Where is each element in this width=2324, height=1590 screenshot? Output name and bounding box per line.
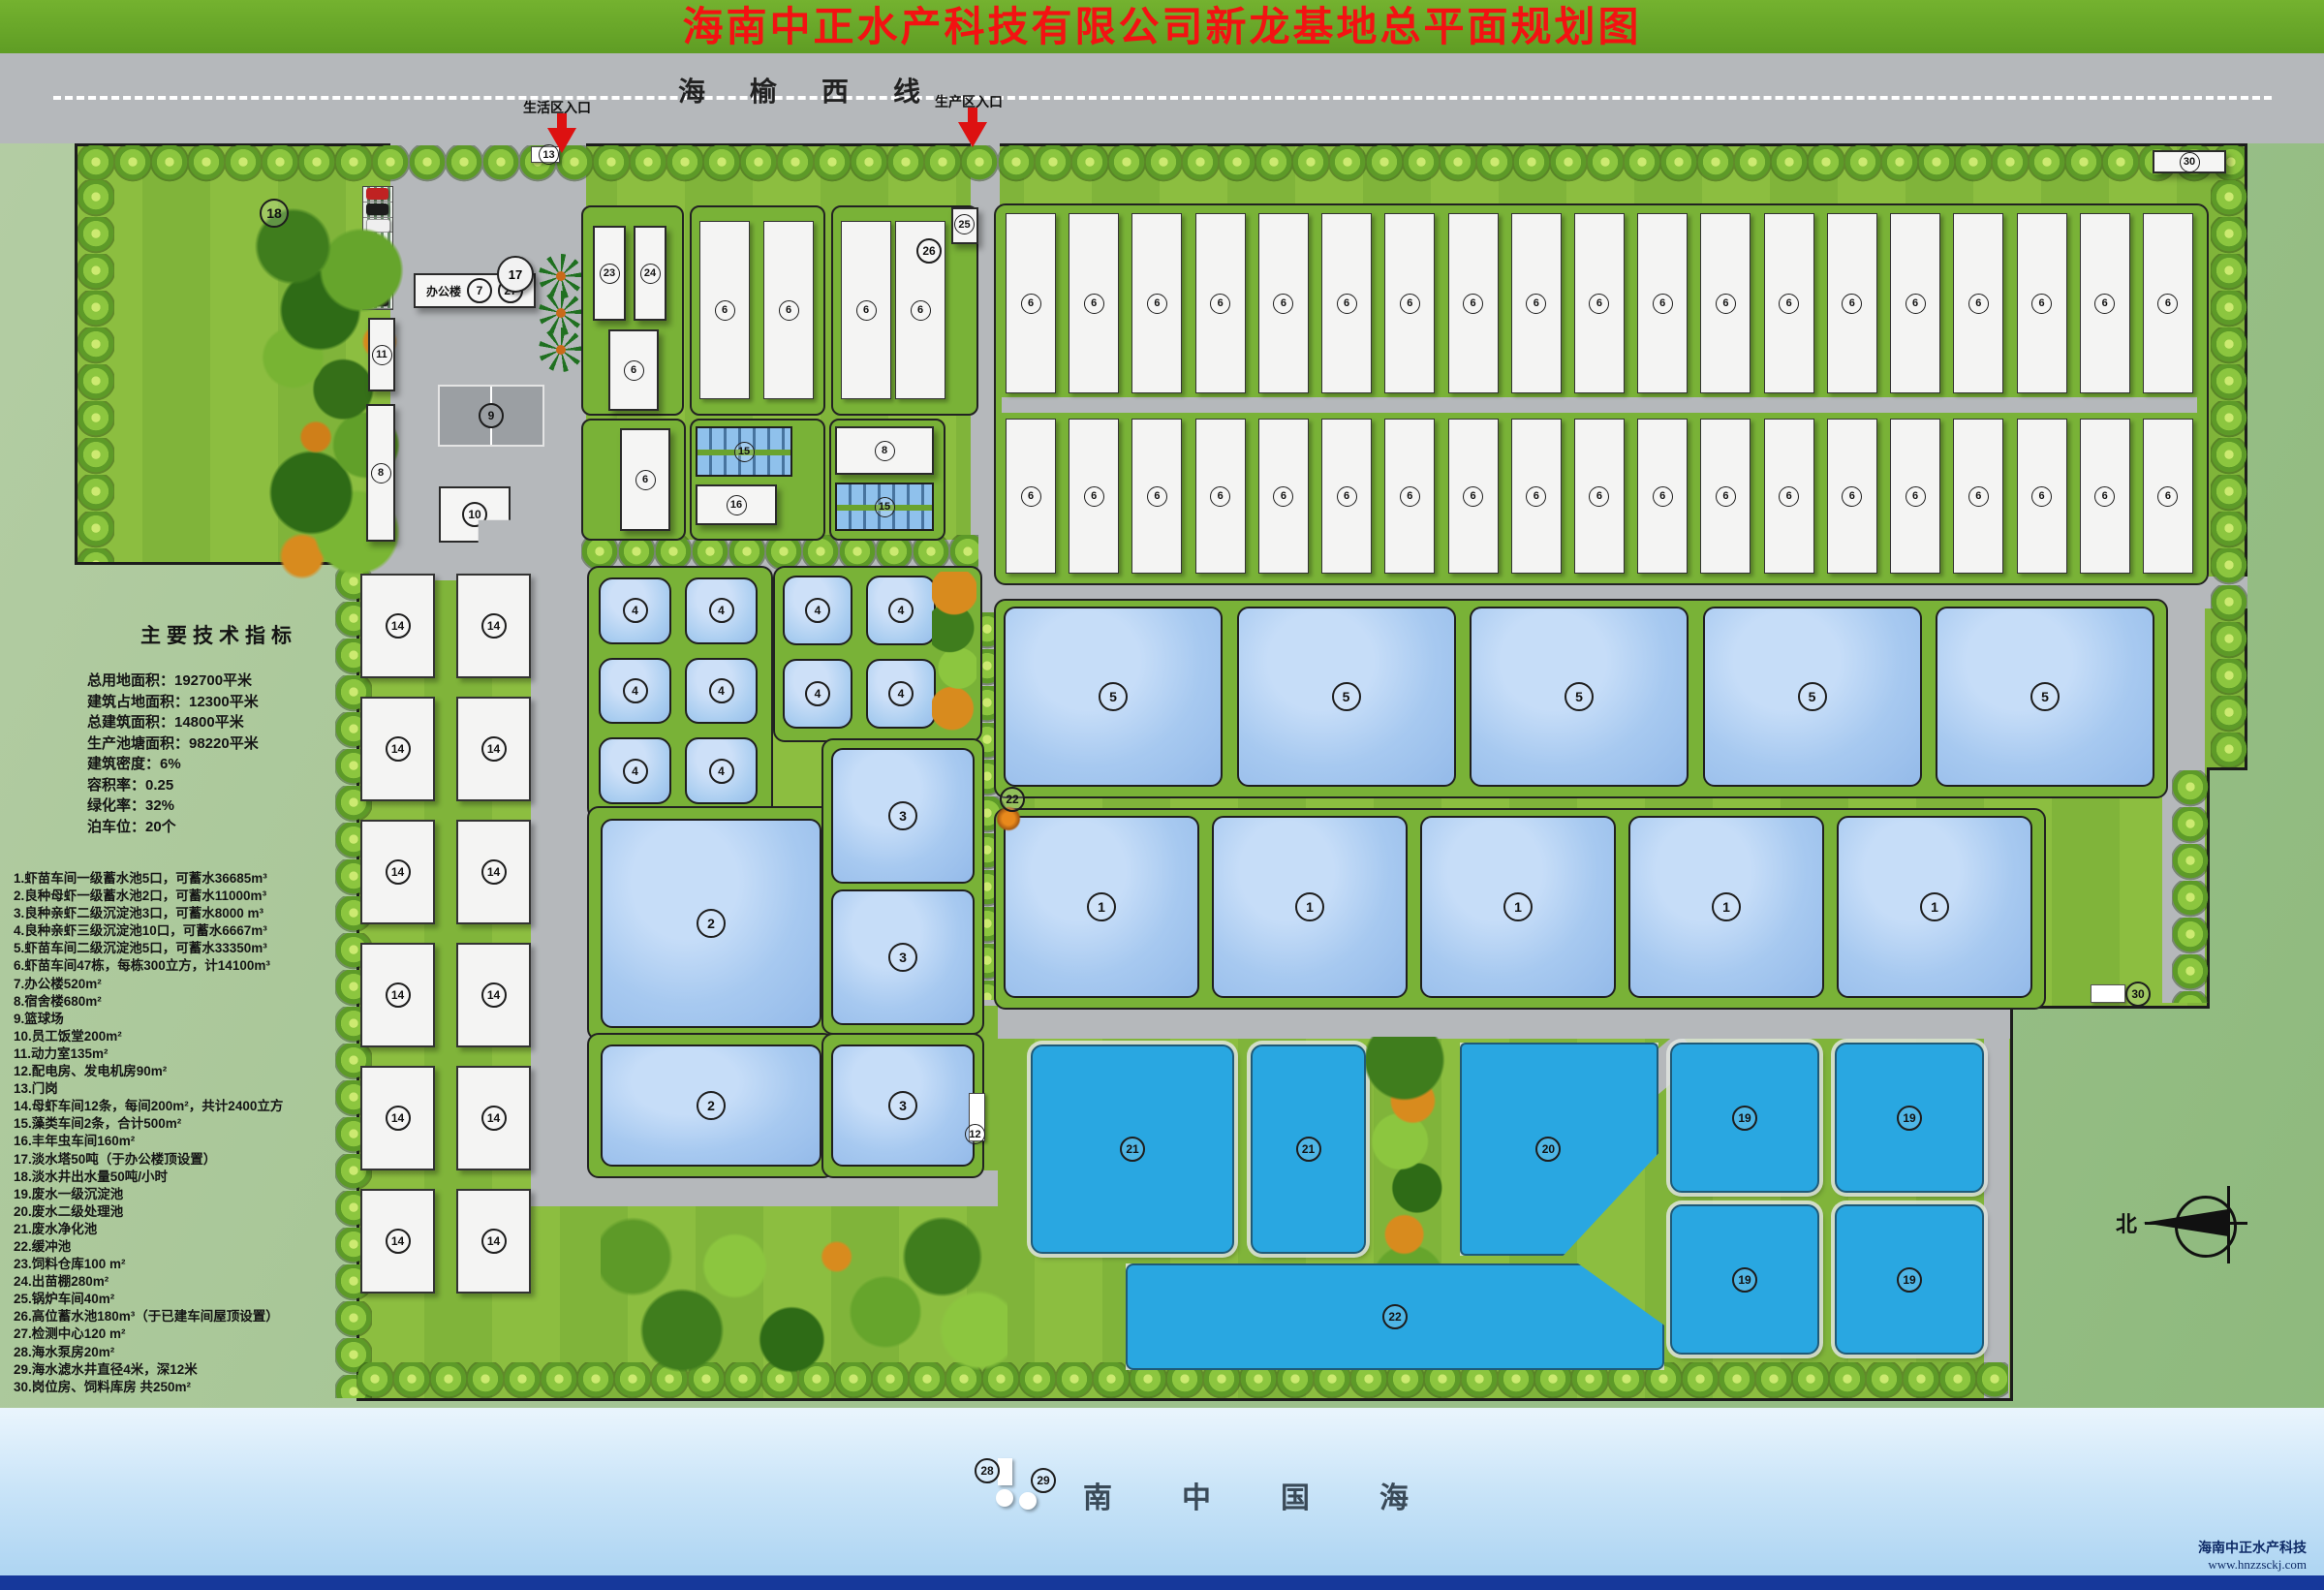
shrimp-workshop: 6 xyxy=(1827,213,1877,393)
shrimp-workshop: 6 xyxy=(699,221,750,399)
page-title: 海南中正水产科技有限公司新龙基地总平面规划图 xyxy=(0,0,2324,53)
shrimp-workshop: 6 xyxy=(1700,213,1751,393)
shrimp-workshop: 6 xyxy=(2017,213,2067,393)
highway: 海榆西线 生活区入口 生产区入口 xyxy=(0,53,2324,143)
indicator-line: 生产池塘面积：98220平米 xyxy=(87,733,407,755)
reservoir-pond: 1 xyxy=(1004,816,1199,998)
storage-pond: 5 xyxy=(1703,607,1922,787)
legend-item: 2.良种母虾一级蓄水池2口，可蓄水11000m³ xyxy=(14,888,356,905)
waste-settling-pond: 19 xyxy=(1670,1204,1819,1355)
shrimp-workshop: 6 xyxy=(1131,213,1182,393)
legend-item: 15.藻类车间2条，合计500m² xyxy=(14,1115,356,1133)
mother-shrimp-workshop: 14 xyxy=(456,820,531,924)
mother-shrimp-workshop: 14 xyxy=(456,574,531,678)
mother-shrimp-pond: 2 xyxy=(601,1044,821,1167)
indicator-line: 绿化率：32% xyxy=(87,795,407,817)
hedge-right-upper xyxy=(2211,180,2247,767)
legend-item: 30.岗位房、饲料库房 共250m² xyxy=(14,1379,356,1396)
mother-shrimp-pond: 2 xyxy=(601,819,821,1028)
legend-item: 4.良种亲虾三级沉淀池10口，可蓄水6667m³ xyxy=(14,922,356,940)
marker-pond2: 2 xyxy=(697,1091,726,1120)
mother-shrimp-workshop: 14 xyxy=(360,1189,435,1294)
watermark-url: www.hnzzsckj.com xyxy=(2198,1557,2307,1573)
shrimp-workshop: 6 xyxy=(1511,419,1562,574)
shrimp-workshop: 6 xyxy=(2080,213,2130,393)
hedge-top xyxy=(77,145,2245,182)
legend-item: 29.海水滤水井直径4米，深12米 xyxy=(14,1361,356,1379)
marker-freshwater-well-area: 18 xyxy=(260,199,289,228)
marker-algae: 15 xyxy=(734,442,755,462)
shrimp-workshop: 6 xyxy=(1258,419,1309,574)
legend-item: 19.废水一级沉淀池 xyxy=(14,1186,356,1203)
sea-bottom-strip xyxy=(0,1575,2324,1590)
tree-cluster xyxy=(225,199,452,596)
hedge-right-mid xyxy=(2172,770,2209,1003)
filter-well-icon xyxy=(1019,1492,1037,1510)
marker-dormitory-2: 8 xyxy=(875,441,895,461)
mother-shrimp-workshop: 14 xyxy=(456,697,531,801)
settling-pool: 4 xyxy=(685,577,758,644)
settling-pool: 4 xyxy=(599,577,671,644)
parent-shrimp-pond: 3 xyxy=(831,748,975,884)
indicator-line: 建筑占地面积：12300平米 xyxy=(87,692,407,713)
legend-item: 18.淡水井出水量50吨/小时 xyxy=(14,1169,356,1186)
indicator-line: 建筑密度：6% xyxy=(87,754,407,775)
indicators-lines: 总用地面积：192700平米建筑占地面积：12300平米总建筑面积：14800平… xyxy=(87,670,407,837)
legend-item: 3.良种亲虾二级沉淀池3口，可蓄水8000 m³ xyxy=(14,905,356,922)
shrimp-workshop: 6 xyxy=(2143,419,2193,574)
highway-label: 海榆西线 xyxy=(678,71,965,109)
indicator-line: 总用地面积：192700平米 xyxy=(87,670,407,692)
sea-area: 南中国海 28 29 海南中正水产科技 www.hnzzsckj.com xyxy=(0,1408,2324,1590)
marker-pond2: 2 xyxy=(697,909,726,938)
entrance-arrow-icon xyxy=(557,113,567,129)
brine-shrimp-workshop: 16 xyxy=(696,484,777,525)
shrimp-workshop: 6 xyxy=(1069,419,1119,574)
shrimp-workshop: 6 xyxy=(1764,419,1814,574)
legend-item: 28.海水泵房20m² xyxy=(14,1344,356,1361)
legend-item: 24.出苗棚280m² xyxy=(14,1273,356,1291)
marker-basketball-court: 9 xyxy=(479,403,504,428)
marker-gate: 13 xyxy=(539,144,559,165)
marker-guard-store: 30 xyxy=(2180,152,2200,172)
reservoir-pond: 1 xyxy=(1212,816,1408,998)
legend-item: 25.锅炉车间40m² xyxy=(14,1291,356,1308)
technical-indicators-panel: 主要技术指标 总用地面积：192700平米建筑占地面积：12300平米总建筑面积… xyxy=(87,620,407,837)
shrimp-workshop: 6 xyxy=(1006,213,1056,393)
shrimp-workshop: 6 xyxy=(1131,419,1182,574)
settling-pool: 4 xyxy=(685,737,758,804)
sprout-shed: 24 xyxy=(634,226,666,321)
reservoir-pond: 1 xyxy=(1837,816,2032,998)
marker-workshop: 6 xyxy=(635,470,656,490)
algae-workshop-pool: 15 xyxy=(696,426,792,477)
shrimp-workshop: 6 xyxy=(1384,419,1435,574)
dormitory-building-2: 8 xyxy=(835,426,934,475)
marker-algae: 15 xyxy=(875,497,895,517)
legend-item: 13.门岗 xyxy=(14,1080,356,1098)
storage-pond: 5 xyxy=(1936,607,2154,787)
outlet-structure xyxy=(2091,984,2125,1003)
shrimp-workshop: 6 xyxy=(608,329,659,411)
waste-settling-pond: 19 xyxy=(1670,1043,1819,1193)
marker-water-tower: 17 xyxy=(509,267,522,282)
guard-feed-store: 30 xyxy=(2153,150,2226,173)
shrimp-workshop: 6 xyxy=(1637,419,1688,574)
settling-pool: 4 xyxy=(866,576,936,645)
workshop-pair-a: 66 xyxy=(699,221,814,399)
shrimp-workshop: 6 xyxy=(1195,419,1246,574)
settling-pool: 4 xyxy=(783,576,852,645)
road-centerline xyxy=(53,96,2272,100)
settling-pool: 4 xyxy=(685,658,758,725)
shrimp-workshop: 6 xyxy=(1258,213,1309,393)
shrimp-workshop: 6 xyxy=(1953,419,2003,574)
marker-rooftop-tank: 26 xyxy=(916,238,942,264)
title-band: 海南中正水产科技有限公司新龙基地总平面规划图 xyxy=(0,0,2324,53)
marker-seawater-pump: 28 xyxy=(975,1458,1000,1483)
legend-item: 10.员工饭堂200m² xyxy=(14,1028,356,1045)
shrimp-workshop: 6 xyxy=(1574,213,1625,393)
marker-outlet: 30 xyxy=(2125,982,2151,1007)
marker-sprout-shed: 24 xyxy=(640,264,661,284)
algae-workshop-pool: 15 xyxy=(835,483,934,531)
marker-boiler: 25 xyxy=(954,214,975,234)
legend-item: 27.检测中心120 m² xyxy=(14,1325,356,1343)
compass-north-arrow xyxy=(2143,1209,2228,1236)
settling-pools-group-b: 4444 xyxy=(783,576,936,729)
storage-pond: 5 xyxy=(1237,607,1456,787)
shrimp-workshop: 6 xyxy=(2017,419,2067,574)
marker-pond21: 21 xyxy=(1120,1137,1145,1162)
filter-well-icon xyxy=(996,1489,1013,1507)
mother-shrimp-workshop: 14 xyxy=(456,1066,531,1170)
boundary-step-ne xyxy=(2207,767,2247,770)
mother-shrimp-workshop: 14 xyxy=(360,1066,435,1170)
marker-office: 7 xyxy=(467,278,492,303)
legend-item: 16.丰年虫车间160m² xyxy=(14,1133,356,1150)
parent-shrimp-pond: 3 xyxy=(831,889,975,1025)
legend-item: 12.配电房、发电机房90m² xyxy=(14,1063,356,1080)
office-label: 办公楼 xyxy=(426,283,461,299)
storage-pond: 5 xyxy=(1470,607,1689,787)
parent-shrimp-pond: 3 xyxy=(831,1044,975,1167)
trees-pool-pad xyxy=(932,572,976,733)
workshop-row-2: 6666666666666666666 xyxy=(1006,419,2193,574)
legend-item: 14.母虾车间12条，每间200m²，共计2400立方 xyxy=(14,1098,356,1115)
shrimp-workshop: 6 xyxy=(1195,213,1246,393)
legend-item: 23.饲料仓库100 m² xyxy=(14,1256,356,1273)
waste-settling-pond: 19 xyxy=(1835,1204,1984,1355)
legend-item: 26.高位蓄水池180m³（于已建车间屋顶设置） xyxy=(14,1308,356,1325)
road-right-lower xyxy=(1984,1039,2009,1398)
storage-pond: 5 xyxy=(1004,607,1223,787)
marker-feed-warehouse: 23 xyxy=(600,264,620,284)
trees-southwest xyxy=(601,1201,1007,1386)
watermark: 海南中正水产科技 www.hnzzsckj.com xyxy=(2198,1538,2307,1573)
entrance-arrow-icon xyxy=(968,108,977,123)
legend-item: 7.办公楼520m² xyxy=(14,976,356,993)
palm-tree-icon xyxy=(539,327,583,372)
shrimp-workshop: 6 xyxy=(1511,213,1562,393)
entrance-arrow-icon xyxy=(958,122,987,147)
power-room: 11 xyxy=(368,318,395,391)
shrimp-workshop: 6 xyxy=(2080,419,2130,574)
marker-pond3: 3 xyxy=(888,943,917,972)
shrimp-workshop: 6 xyxy=(1321,419,1372,574)
legend-item: 11.动力室135m² xyxy=(14,1045,356,1063)
workshop-row-1: 6666666666666666666 xyxy=(1006,213,2193,393)
marker-pond22: 22 xyxy=(1382,1304,1408,1329)
marker-pond21: 21 xyxy=(1296,1137,1321,1162)
boundary-right-lower xyxy=(2010,1006,2013,1401)
shrimp-workshop: 6 xyxy=(1574,419,1625,574)
primary-settling-ponds: 19191919 xyxy=(1670,1043,1984,1355)
shrimp-workshop: 6 xyxy=(1637,213,1688,393)
hedge-left xyxy=(77,180,114,562)
marker-filter-well: 29 xyxy=(1031,1468,1056,1493)
shrimp-workshop: 6 xyxy=(1448,419,1499,574)
indicator-line: 总建筑面积：14800平米 xyxy=(87,712,407,733)
mother-shrimp-workshop: 14 xyxy=(456,943,531,1047)
settling-pools-group-a: 444444 xyxy=(599,577,758,804)
legend-item: 8.宿舍楼680m² xyxy=(14,993,356,1011)
legend-item: 5.虾苗车间二级沉淀池5口，可蓄水33350m³ xyxy=(14,940,356,957)
feed-warehouse: 23 xyxy=(593,226,626,321)
shrimp-workshop: 6 xyxy=(1448,213,1499,393)
shrimp-workshop: 6 xyxy=(1890,213,1940,393)
compass-north-label: 北 xyxy=(2116,1207,2137,1238)
reservoir-pond: 1 xyxy=(1420,816,1616,998)
shrimp-workshop: 6 xyxy=(763,221,814,399)
legend-list: 1.虾苗车间一级蓄水池5口，可蓄水36685m³2.良种母虾一级蓄水池2口，可蓄… xyxy=(14,870,356,1396)
marker-pond3: 3 xyxy=(888,1091,917,1120)
shrimp-workshop: 6 xyxy=(1321,213,1372,393)
indicator-line: 泊车位：20个 xyxy=(87,817,407,838)
waste-settling-pond: 19 xyxy=(1835,1043,1984,1193)
dormitory-building: 8 xyxy=(366,404,395,542)
marker-pond3: 3 xyxy=(888,801,917,830)
settling-pool: 4 xyxy=(599,737,671,804)
legend-item: 20.废水二级处理池 xyxy=(14,1203,356,1221)
legend-item: 17.淡水塔50吨（于办公楼顶设置） xyxy=(14,1151,356,1169)
marker-buffer-pond: 22 xyxy=(1000,787,1025,812)
buffer-pond: 22 xyxy=(1126,1263,1664,1370)
shrimp-workshop: 6 xyxy=(1890,419,1940,574)
shrimp-workshop: 6 xyxy=(2143,213,2193,393)
storage-ponds-row: 55555 xyxy=(1004,607,2154,787)
marker-brine-shrimp: 16 xyxy=(727,495,747,515)
purification-pond: 21 xyxy=(1031,1044,1234,1254)
legend-item: 6.虾苗车间47栋，每栋300立方，计14100m³ xyxy=(14,957,356,975)
legend-item: 22.缓冲池 xyxy=(14,1238,356,1256)
sea-label: 南中国海 xyxy=(1083,1474,1478,1516)
basketball-court: 9 xyxy=(438,385,544,447)
shrimp-workshop: 6 xyxy=(1700,419,1751,574)
shrimp-workshop: 6 xyxy=(1764,213,1814,393)
legend-item: 21.废水净化池 xyxy=(14,1221,356,1238)
shrimp-workshop: 6 xyxy=(1953,213,2003,393)
water-tower: 17 xyxy=(497,256,534,293)
settling-pool: 4 xyxy=(783,659,852,729)
indicators-title: 主要技术指标 xyxy=(140,620,407,649)
reservoir-pond: 1 xyxy=(1628,816,1824,998)
legend-item: 1.虾苗车间一级蓄水池5口，可蓄水36685m³ xyxy=(14,870,356,888)
mother-shrimp-workshop: 14 xyxy=(360,943,435,1047)
shrimp-workshop: 6 xyxy=(841,221,891,399)
marker-substation: 12 xyxy=(965,1124,985,1144)
watermark-company: 海南中正水产科技 xyxy=(2198,1538,2307,1557)
marker-dormitory: 8 xyxy=(371,463,391,483)
reservoir-ponds-row: 11111 xyxy=(1004,816,2032,998)
mother-shrimp-workshop: 14 xyxy=(456,1189,531,1294)
shrimp-workshop: 6 xyxy=(1006,419,1056,574)
marker-power-room: 11 xyxy=(372,345,392,365)
field-divider-road xyxy=(1002,397,2197,413)
legend-item: 9.篮球场 xyxy=(14,1011,356,1028)
indicator-line: 容积率：0.25 xyxy=(87,775,407,796)
shrimp-workshop: 6 xyxy=(1384,213,1435,393)
settling-pool: 4 xyxy=(866,659,936,729)
shrimp-workshop: 6 xyxy=(620,428,670,531)
purification-pond: 21 xyxy=(1251,1044,1366,1254)
marker-pond20: 20 xyxy=(1535,1137,1561,1162)
pump-house xyxy=(998,1458,1012,1485)
shrimp-workshop: 6 xyxy=(1069,213,1119,393)
site-plan-canvas: 13 18 办公楼 7 27 17 11 8 9 10 23 24 6 66 6… xyxy=(0,0,2324,1590)
marker-workshop: 6 xyxy=(624,360,644,381)
settling-pool: 4 xyxy=(599,658,671,725)
shrimp-workshop: 6 xyxy=(1827,419,1877,574)
